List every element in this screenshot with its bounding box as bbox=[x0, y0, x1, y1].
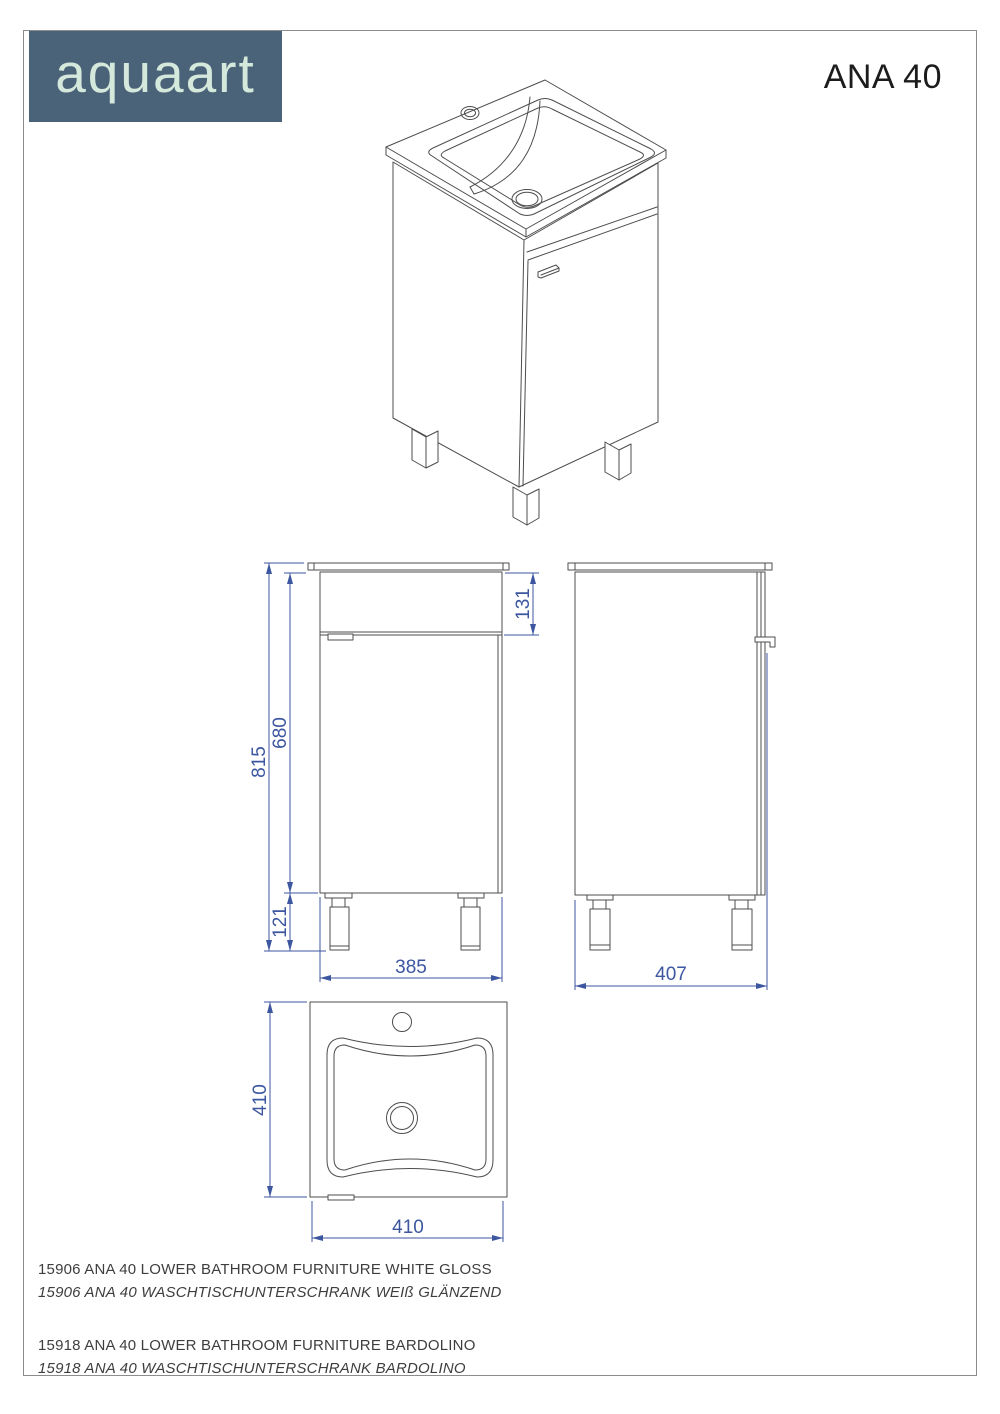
front-view-drawing: 815 680 121 131 385 bbox=[248, 548, 568, 993]
product-list: 15906 ANA 40 LOWER BATHROOM FURNITURE WH… bbox=[38, 1258, 502, 1380]
dim-front-total-height: 815 bbox=[249, 746, 270, 778]
dim-front-width: 385 bbox=[395, 957, 427, 978]
side-countertop bbox=[568, 563, 772, 570]
top-countertop bbox=[310, 1002, 507, 1197]
product-1-line-en: 15906 ANA 40 LOWER BATHROOM FURNITURE WH… bbox=[38, 1258, 502, 1281]
side-cabinet-body bbox=[575, 572, 765, 895]
front-legs bbox=[325, 893, 484, 950]
dim-side-depth: 407 bbox=[655, 964, 687, 985]
datasheet-page: aquaart ANA 40 bbox=[0, 0, 1000, 1414]
dim-front-body-height: 680 bbox=[270, 717, 291, 749]
product-title: ANA 40 bbox=[802, 58, 942, 97]
dim-front-leg-height: 121 bbox=[270, 906, 291, 938]
side-legs bbox=[587, 895, 755, 950]
brand-logo-text: aquaart bbox=[55, 46, 256, 107]
product-2-line-en: 15918 ANA 40 LOWER BATHROOM FURNITURE BA… bbox=[38, 1334, 502, 1357]
front-door-handle bbox=[328, 634, 353, 640]
front-countertop bbox=[308, 563, 509, 570]
dim-top-width: 410 bbox=[392, 1217, 424, 1238]
dim-front-top-height: 131 bbox=[513, 588, 534, 620]
top-view-drawing: 410 410 bbox=[233, 985, 523, 1260]
product-2-line-de: 15918 ANA 40 WASCHTISCHUNTERSCHRANK BARD… bbox=[38, 1357, 502, 1380]
isometric-view-drawing bbox=[358, 73, 698, 543]
front-cabinet-body bbox=[320, 572, 502, 893]
product-1-line-de: 15906 ANA 40 WASCHTISCHUNTERSCHRANK WEIß… bbox=[38, 1281, 502, 1304]
dim-top-height: 410 bbox=[250, 1084, 271, 1116]
top-door-handle bbox=[328, 1195, 354, 1200]
brand-logo: aquaart bbox=[29, 31, 282, 122]
side-view-drawing: 407 bbox=[548, 548, 798, 993]
